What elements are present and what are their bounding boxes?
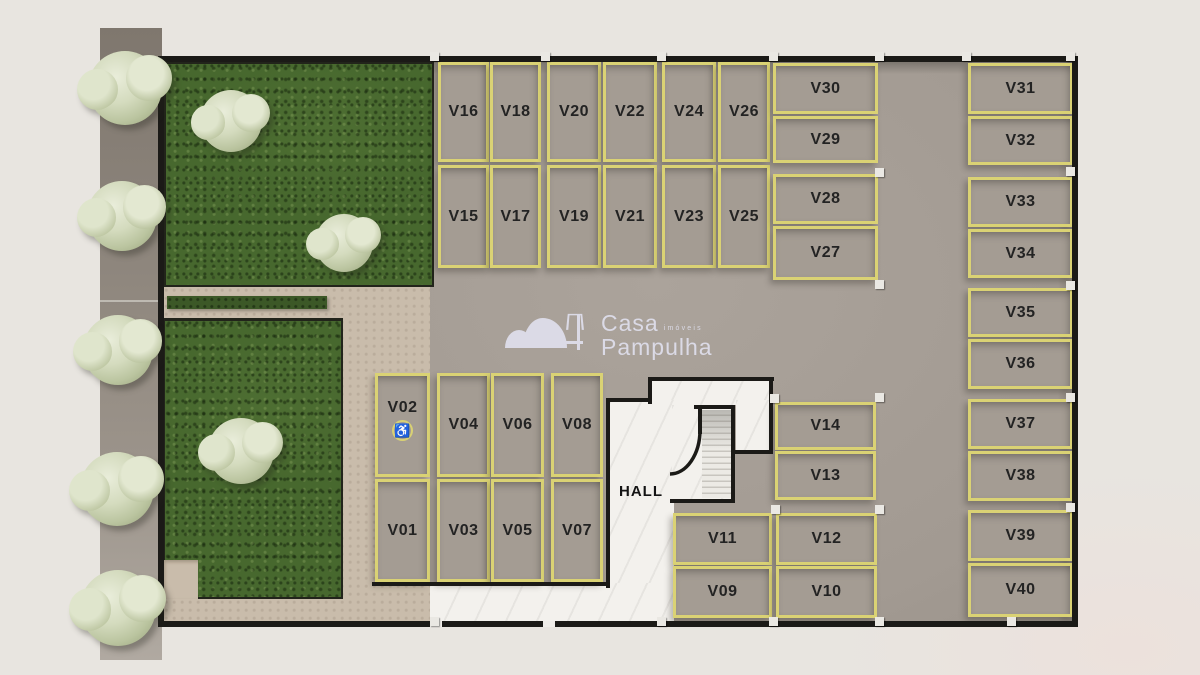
stall-label: V34	[1006, 246, 1036, 262]
stall-V26: V26	[718, 62, 770, 162]
stall-V08: V08	[551, 373, 603, 477]
column-marker	[771, 505, 780, 514]
stall-label: V04	[449, 417, 479, 433]
stall-V02: V02♿	[375, 373, 430, 477]
casa-pampulha-logo: Casa imóveis Pampulha	[505, 310, 713, 359]
column-marker	[541, 52, 550, 61]
stall-V07: V07	[551, 479, 603, 582]
stall-V04: V04	[437, 373, 490, 477]
stall-block-wall	[372, 582, 610, 586]
stall-V37: V37	[968, 399, 1073, 449]
column-marker	[770, 394, 779, 403]
column-marker	[875, 168, 884, 177]
brand-sub: imóveis	[664, 325, 703, 332]
tree-icon	[88, 51, 162, 125]
hall-wall	[769, 377, 773, 454]
stall-V39: V39	[968, 510, 1073, 561]
stall-label: V15	[449, 209, 479, 225]
accessible-parking-icon: ♿	[392, 420, 413, 441]
stall-V36: V36	[968, 339, 1073, 389]
hall-wall	[648, 377, 774, 381]
column-marker	[1007, 617, 1016, 626]
wall-right	[1072, 56, 1078, 627]
column-marker	[875, 52, 884, 61]
stall-V30: V30	[773, 63, 878, 114]
column-marker	[962, 52, 971, 61]
hall-label: HALL	[608, 483, 674, 500]
stall-label: V11	[708, 531, 737, 547]
curved-wall	[666, 426, 706, 478]
column-marker	[1066, 503, 1075, 512]
stall-V34: V34	[968, 229, 1073, 278]
column-marker	[875, 280, 884, 289]
column-marker	[430, 617, 439, 626]
stall-V03: V03	[437, 479, 490, 582]
stall-V25: V25	[718, 165, 770, 268]
column-marker	[430, 52, 439, 61]
stall-V23: V23	[662, 165, 716, 268]
hall-wall	[731, 405, 735, 503]
stall-V40: V40	[968, 563, 1073, 617]
sidewalk-joint	[100, 300, 162, 302]
tree-icon	[200, 90, 262, 152]
path-notch	[163, 560, 198, 599]
hall-wall	[670, 499, 735, 503]
brand-name-2: Pampulha	[601, 336, 713, 359]
hedge-strip	[167, 296, 327, 309]
stall-label: V36	[1006, 356, 1036, 372]
stall-label: V40	[1006, 582, 1036, 598]
tree-icon	[83, 315, 153, 385]
stall-label: V08	[562, 417, 592, 433]
stall-label: V27	[811, 245, 841, 261]
stall-label: V29	[811, 132, 841, 148]
tree-icon	[315, 214, 373, 272]
stall-label: V38	[1006, 468, 1036, 484]
stall-label: V02	[388, 400, 418, 416]
column-marker	[1066, 281, 1075, 290]
stall-label: V16	[449, 104, 479, 120]
stall-V01: V01	[375, 479, 430, 582]
pampulha-church-icon	[505, 310, 591, 356]
hall-wall	[731, 450, 773, 454]
lawn-upper	[164, 62, 434, 287]
stall-label: V31	[1006, 81, 1036, 97]
stall-V14: V14	[775, 402, 876, 450]
entry-walkway	[430, 583, 674, 624]
stall-label: V28	[811, 191, 841, 207]
stall-V05: V05	[491, 479, 544, 582]
stall-label: V13	[811, 468, 841, 484]
entrance-gap	[543, 621, 555, 627]
column-marker	[875, 393, 884, 402]
stall-label: V24	[674, 104, 704, 120]
stall-label: V21	[615, 209, 645, 225]
brand-name: Casa	[601, 312, 659, 335]
parking-floor-plan: V16V18V15V17V20V22V19V21V24V26V23V25V30V…	[0, 0, 1200, 675]
stall-V12: V12	[776, 513, 877, 565]
stall-V19: V19	[547, 165, 601, 268]
column-marker	[657, 52, 666, 61]
stall-V29: V29	[773, 116, 878, 163]
stall-label: V20	[559, 104, 589, 120]
stall-V17: V17	[490, 165, 541, 268]
column-marker	[769, 617, 778, 626]
stall-label: V25	[729, 209, 759, 225]
stall-label: V09	[708, 584, 738, 600]
stall-V24: V24	[662, 62, 716, 162]
stall-V16: V16	[438, 62, 489, 162]
stall-V32: V32	[968, 116, 1073, 165]
wall-bottom	[160, 621, 1078, 627]
stall-label: V30	[811, 81, 841, 97]
column-marker	[875, 617, 884, 626]
stall-V10: V10	[776, 566, 877, 618]
stall-label: V26	[729, 104, 759, 120]
stall-V20: V20	[547, 62, 601, 162]
stall-V27: V27	[773, 226, 878, 280]
stall-V06: V06	[491, 373, 544, 477]
elevator-room	[736, 400, 772, 450]
column-marker	[875, 505, 884, 514]
staircase	[702, 410, 731, 498]
stall-label: V03	[449, 523, 479, 539]
stall-V22: V22	[603, 62, 657, 162]
stall-label: V14	[811, 418, 841, 434]
stall-label: V19	[559, 209, 589, 225]
stall-label: V06	[503, 417, 533, 433]
stall-label: V39	[1006, 528, 1036, 544]
tree-icon	[208, 418, 274, 484]
stall-label: V22	[615, 104, 645, 120]
column-marker	[1066, 52, 1075, 61]
stall-V31: V31	[968, 63, 1073, 114]
stall-V13: V13	[775, 451, 876, 500]
wall-top	[160, 56, 1078, 62]
stall-label: V05	[503, 523, 533, 539]
stall-label: V10	[812, 584, 842, 600]
stall-label: V35	[1006, 305, 1036, 321]
stall-V15: V15	[438, 165, 489, 268]
column-marker	[657, 617, 666, 626]
column-marker	[769, 52, 778, 61]
column-marker	[1066, 393, 1075, 402]
stall-label: V12	[812, 531, 842, 547]
stall-V21: V21	[603, 165, 657, 268]
stall-label: V33	[1006, 194, 1036, 210]
stall-V35: V35	[968, 288, 1073, 337]
stall-label: V18	[501, 104, 531, 120]
stall-label: V32	[1006, 133, 1036, 149]
stall-V18: V18	[490, 62, 541, 162]
hall-wall	[606, 398, 652, 402]
stall-V33: V33	[968, 177, 1073, 227]
stall-label: V07	[562, 523, 592, 539]
stall-V38: V38	[968, 451, 1073, 501]
tree-icon	[80, 570, 156, 646]
stall-V28: V28	[773, 174, 878, 224]
stall-label: V17	[501, 209, 531, 225]
stall-label: V23	[674, 209, 704, 225]
stall-V09: V09	[673, 566, 772, 618]
stall-label: V37	[1006, 416, 1036, 432]
stall-label: V01	[388, 523, 418, 539]
column-marker	[1066, 167, 1075, 176]
tree-icon	[80, 452, 154, 526]
logo-text: Casa imóveis Pampulha	[601, 312, 713, 359]
tree-icon	[87, 181, 157, 251]
stall-V11: V11	[673, 513, 772, 565]
